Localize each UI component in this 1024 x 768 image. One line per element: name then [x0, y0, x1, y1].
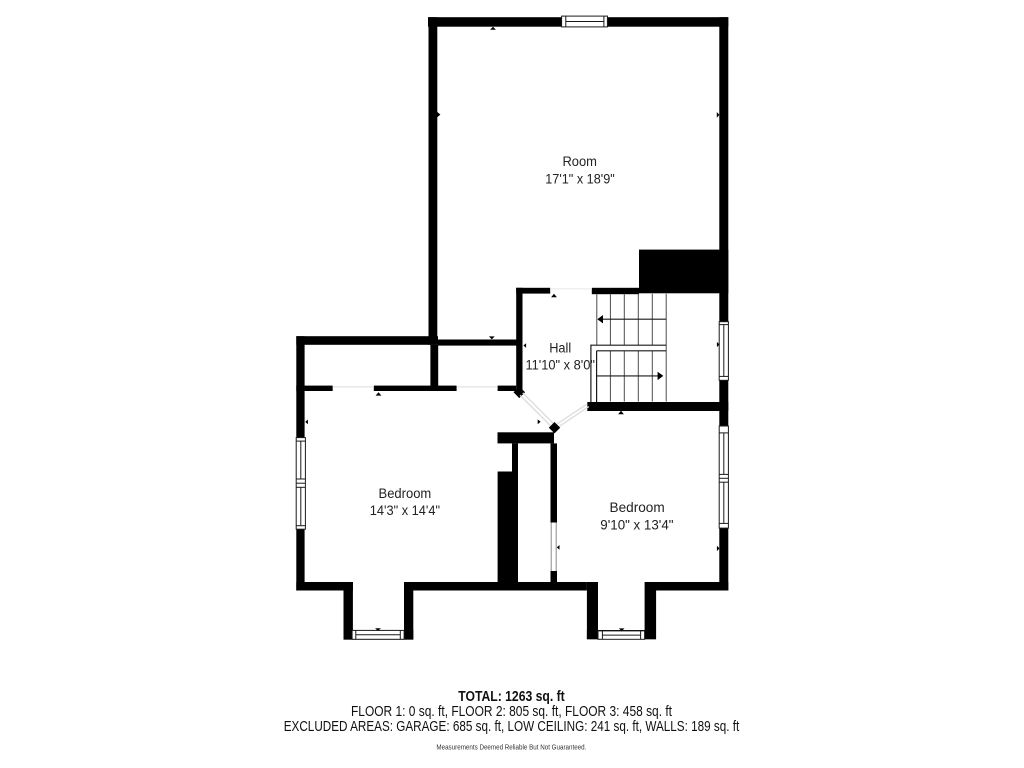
svg-text:Hall: Hall: [549, 341, 571, 356]
svg-text:9'10" x 13'4": 9'10" x 13'4": [600, 518, 673, 533]
svg-text:Measurements Deemed Reliable B: Measurements Deemed Reliable But Not Gua…: [436, 744, 586, 751]
svg-text:Room: Room: [562, 154, 597, 169]
svg-text:17'1" x 18'9": 17'1" x 18'9": [545, 172, 615, 187]
svg-text:Bedroom: Bedroom: [379, 486, 432, 501]
svg-text:11'10" x 8'0": 11'10" x 8'0": [525, 357, 595, 372]
svg-text:EXCLUDED AREAS: GARAGE: 685 sq: EXCLUDED AREAS: GARAGE: 685 sq. ft, LOW …: [284, 718, 740, 735]
svg-text:Bedroom: Bedroom: [610, 500, 665, 515]
svg-text:14'3" x 14'4": 14'3" x 14'4": [370, 503, 440, 518]
